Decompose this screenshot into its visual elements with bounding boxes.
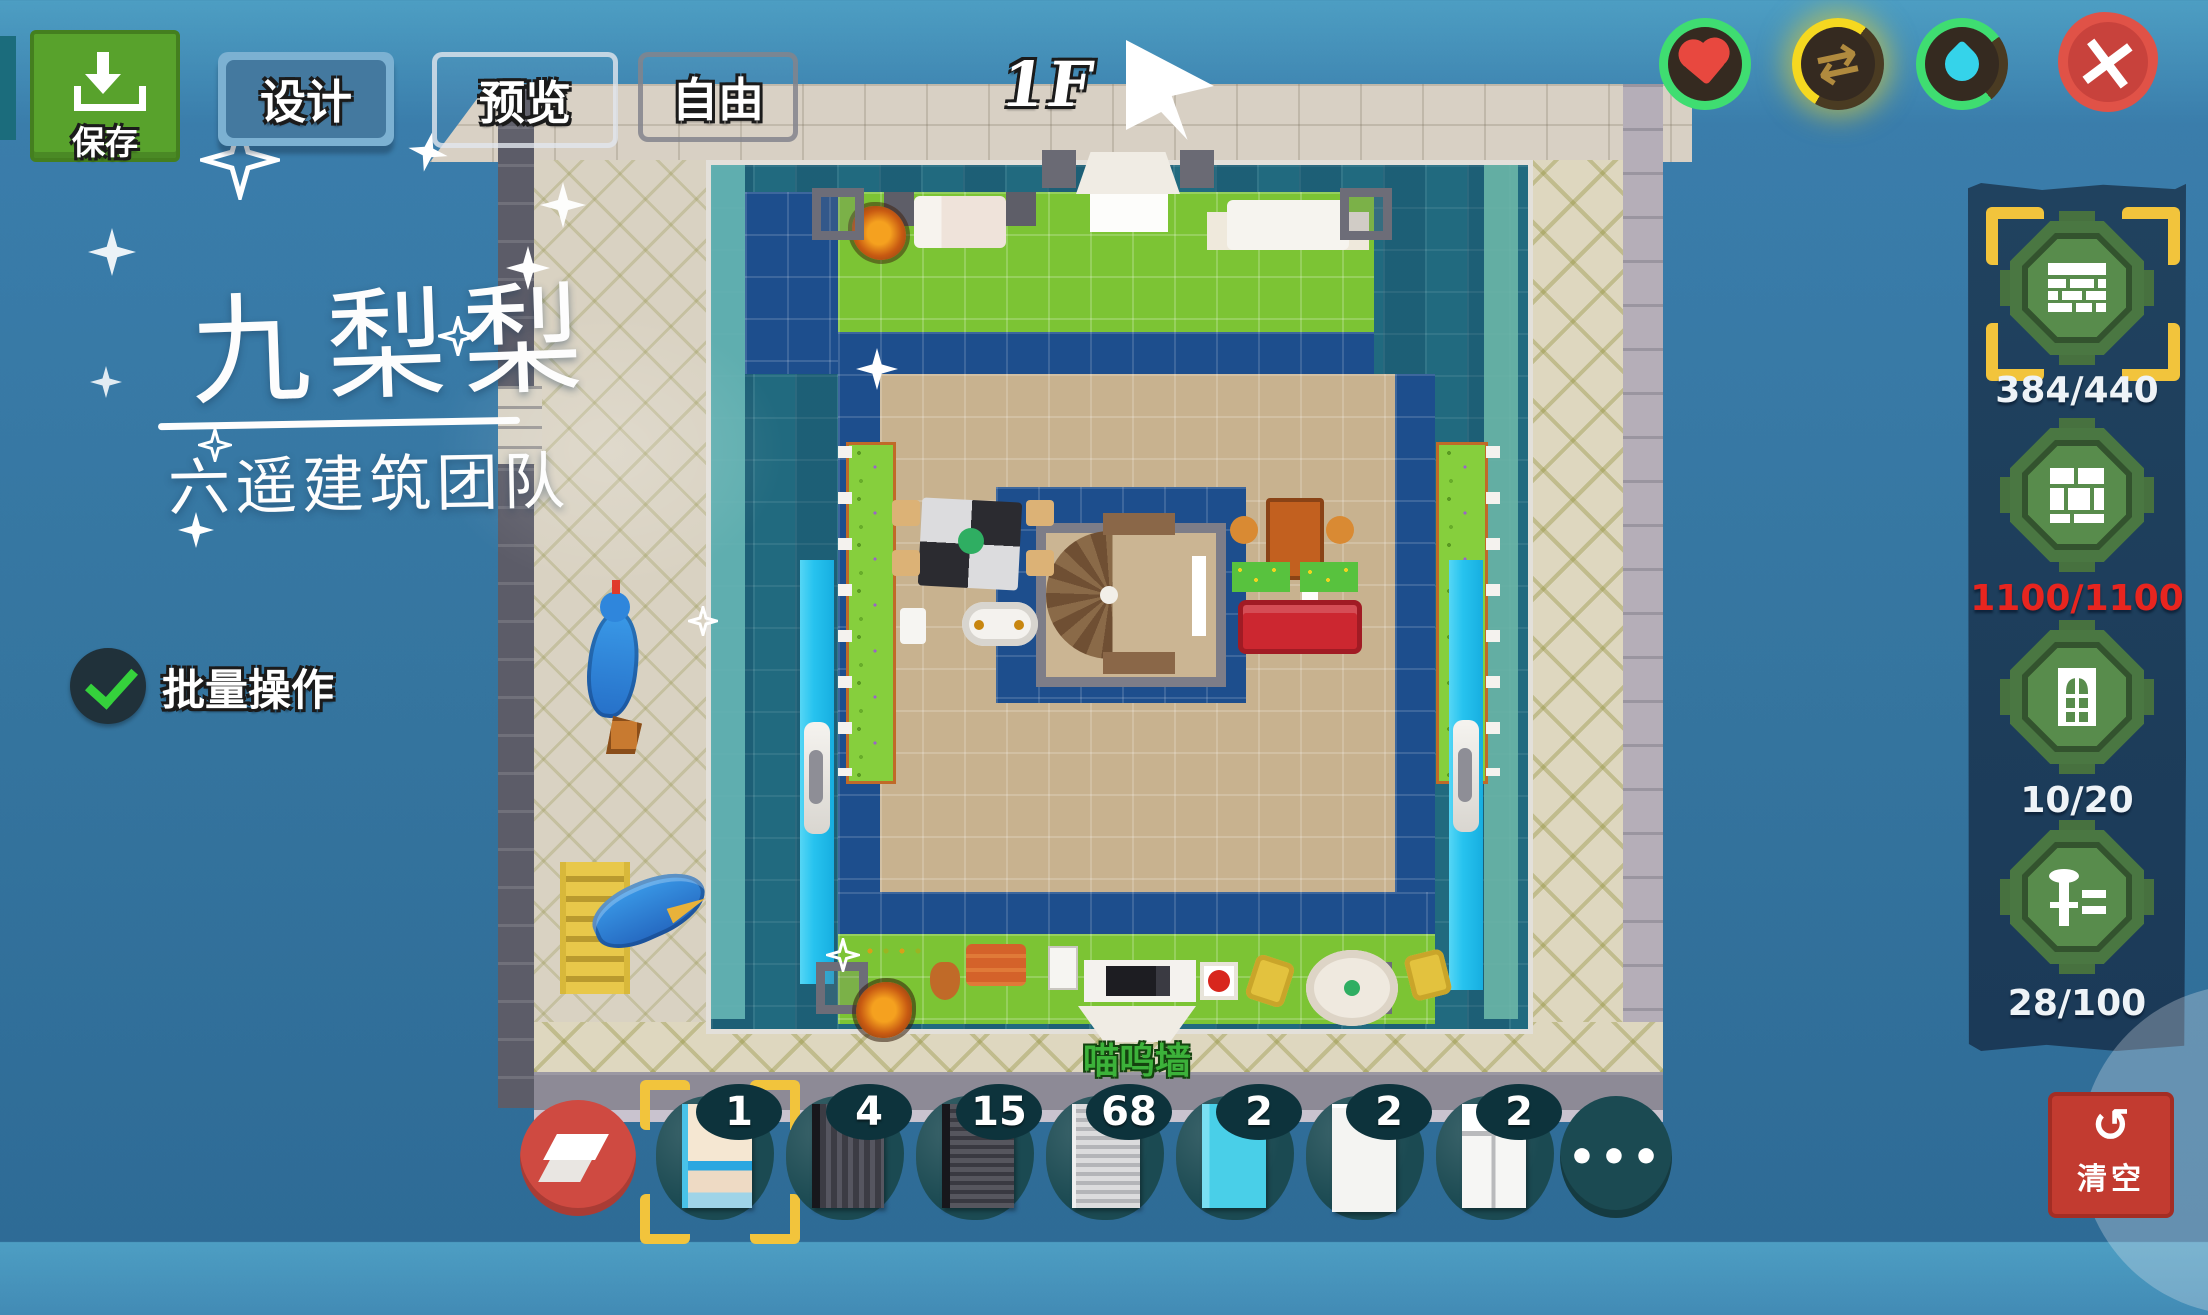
heart-icon	[1684, 43, 1726, 85]
swap-arrows-icon: ⇄	[1810, 30, 1865, 98]
cream-band-right	[1523, 160, 1623, 1106]
slot-count: 15	[971, 1089, 1027, 1135]
spiral-center	[1100, 586, 1118, 604]
health-button[interactable]	[1659, 18, 1751, 110]
entry-steps	[1076, 152, 1180, 194]
bed-post-right	[1006, 192, 1036, 226]
resource-doors-windows[interactable]	[2002, 622, 2152, 772]
navy-strip-right	[1395, 374, 1435, 934]
more-blocks-button[interactable]: •••	[1560, 1096, 1672, 1218]
sparkle-outline-icon	[438, 316, 478, 356]
pool-light-edge-left	[711, 165, 745, 1019]
flower-planter-1	[1232, 562, 1290, 592]
planter-column-left	[846, 442, 896, 784]
floors-count: 1100/1100	[1968, 578, 2186, 619]
hotbar-slot-3[interactable]: 15	[916, 1096, 1034, 1220]
slot-count: 1	[725, 1089, 753, 1135]
slot-count: 68	[1101, 1089, 1157, 1135]
hotbar-slot-5[interactable]: 2	[1176, 1096, 1294, 1220]
red-sofa	[1238, 600, 1362, 654]
right-outer-wall	[1623, 84, 1663, 1108]
fridge	[1048, 946, 1078, 990]
hotbar-slot-7[interactable]: 2	[1436, 1096, 1554, 1220]
corner-marker-tl	[812, 188, 864, 240]
pillar-row-left	[838, 446, 852, 776]
tomato	[1208, 970, 1230, 992]
rug-plant	[1344, 980, 1360, 996]
stair-room-door	[1192, 556, 1206, 636]
orange-bench	[966, 944, 1026, 986]
save-label: 保存	[34, 116, 176, 164]
resource-panel: 384/440 1100/1100 10/20 28/100	[1968, 183, 2186, 1051]
water-button[interactable]	[1916, 18, 2008, 110]
chair-4	[1026, 550, 1054, 576]
sparkle-outline-icon	[198, 428, 232, 462]
undo-arrow-icon: ↺	[2052, 1096, 2170, 1154]
sofa-set-top-right	[1227, 200, 1349, 250]
bathtub-taps	[974, 620, 984, 630]
resource-floors[interactable]	[2002, 420, 2152, 570]
entry-post-left	[1042, 150, 1076, 188]
swap-mode-button[interactable]: ⇄	[1792, 18, 1884, 110]
tab-free-label: 自由	[643, 57, 793, 137]
resource-furniture[interactable]	[2002, 822, 2152, 972]
tab-free[interactable]: 自由	[638, 52, 798, 142]
brick-wall-icon	[2042, 253, 2112, 323]
dining-plant	[958, 528, 984, 554]
hotbar-slot-1[interactable]: 1	[656, 1096, 774, 1220]
fountain-statue-left	[804, 722, 830, 834]
tab-design[interactable]: 设计	[218, 52, 394, 146]
flower-row	[862, 944, 928, 958]
tab-design-label: 设计	[218, 52, 394, 146]
floor-tiles-icon	[2042, 460, 2112, 530]
firepit-bottom	[856, 982, 912, 1038]
ellipsis-icon: •••	[1568, 1132, 1664, 1183]
hotbar-slot-4[interactable]: 68	[1046, 1096, 1164, 1220]
eraser-button[interactable]	[520, 1100, 636, 1216]
batch-operation-label: 批量操作	[162, 656, 334, 718]
download-icon	[97, 52, 109, 76]
save-button[interactable]: 保存	[30, 30, 180, 162]
stove	[1106, 966, 1170, 996]
stool-left	[1230, 516, 1258, 544]
tab-preview[interactable]: 预览	[432, 52, 618, 148]
washbasin	[900, 608, 926, 644]
build-canvas[interactable]: 喵呜墙	[0, 0, 2208, 1242]
slot-count: 2	[1375, 1089, 1403, 1135]
eraser-icon	[543, 1134, 609, 1160]
navy-strip-top	[838, 332, 1374, 374]
resource-walls[interactable]	[2002, 213, 2152, 363]
corner-marker-tr	[1340, 188, 1392, 240]
sparkle-outline-icon	[826, 938, 860, 972]
close-icon: ×	[2076, 57, 2141, 66]
furniture-icon	[2042, 862, 2112, 932]
slot-count: 4	[855, 1089, 883, 1135]
fountain-statue-right	[1453, 720, 1479, 832]
bed	[914, 196, 1006, 248]
flower-planter-2	[1300, 562, 1358, 592]
hotbar-slot-6[interactable]: 2	[1306, 1096, 1424, 1220]
slot-count: 2	[1245, 1089, 1273, 1135]
stool-right	[1326, 516, 1354, 544]
walls-count: 384/440	[1968, 370, 2186, 411]
chair-3	[1026, 500, 1054, 526]
door-icon	[2042, 662, 2112, 732]
water-drop-icon	[1938, 40, 1986, 88]
doors-count: 10/20	[1968, 780, 2186, 821]
navy-strip-bottom	[838, 892, 1435, 934]
clear-button[interactable]: ↺ 清空	[2048, 1092, 2174, 1218]
sparkle-outline-icon	[688, 606, 718, 636]
chair-2	[892, 550, 920, 576]
tab-preview-label: 预览	[437, 57, 613, 143]
slot-count: 2	[1505, 1089, 1533, 1135]
batch-operation-toggle[interactable]: 批量操作	[70, 648, 430, 728]
hotbar-slot-2[interactable]: 4	[786, 1096, 904, 1220]
left-outer-wall	[498, 88, 534, 1108]
clear-label: 清空	[2052, 1154, 2170, 1198]
entry-post-right	[1180, 150, 1214, 188]
clay-pot	[930, 962, 960, 1000]
chair-1	[892, 500, 920, 526]
entry-landing	[1090, 194, 1168, 232]
floor-indicator: 1F	[997, 48, 1100, 121]
pillar-row-right	[1486, 446, 1500, 776]
wall-sign: 喵呜墙	[1062, 1032, 1212, 1084]
stair-platform-bottom	[1103, 652, 1175, 674]
stair-platform-top	[1103, 513, 1175, 535]
edge-teal-sliver	[0, 36, 16, 140]
